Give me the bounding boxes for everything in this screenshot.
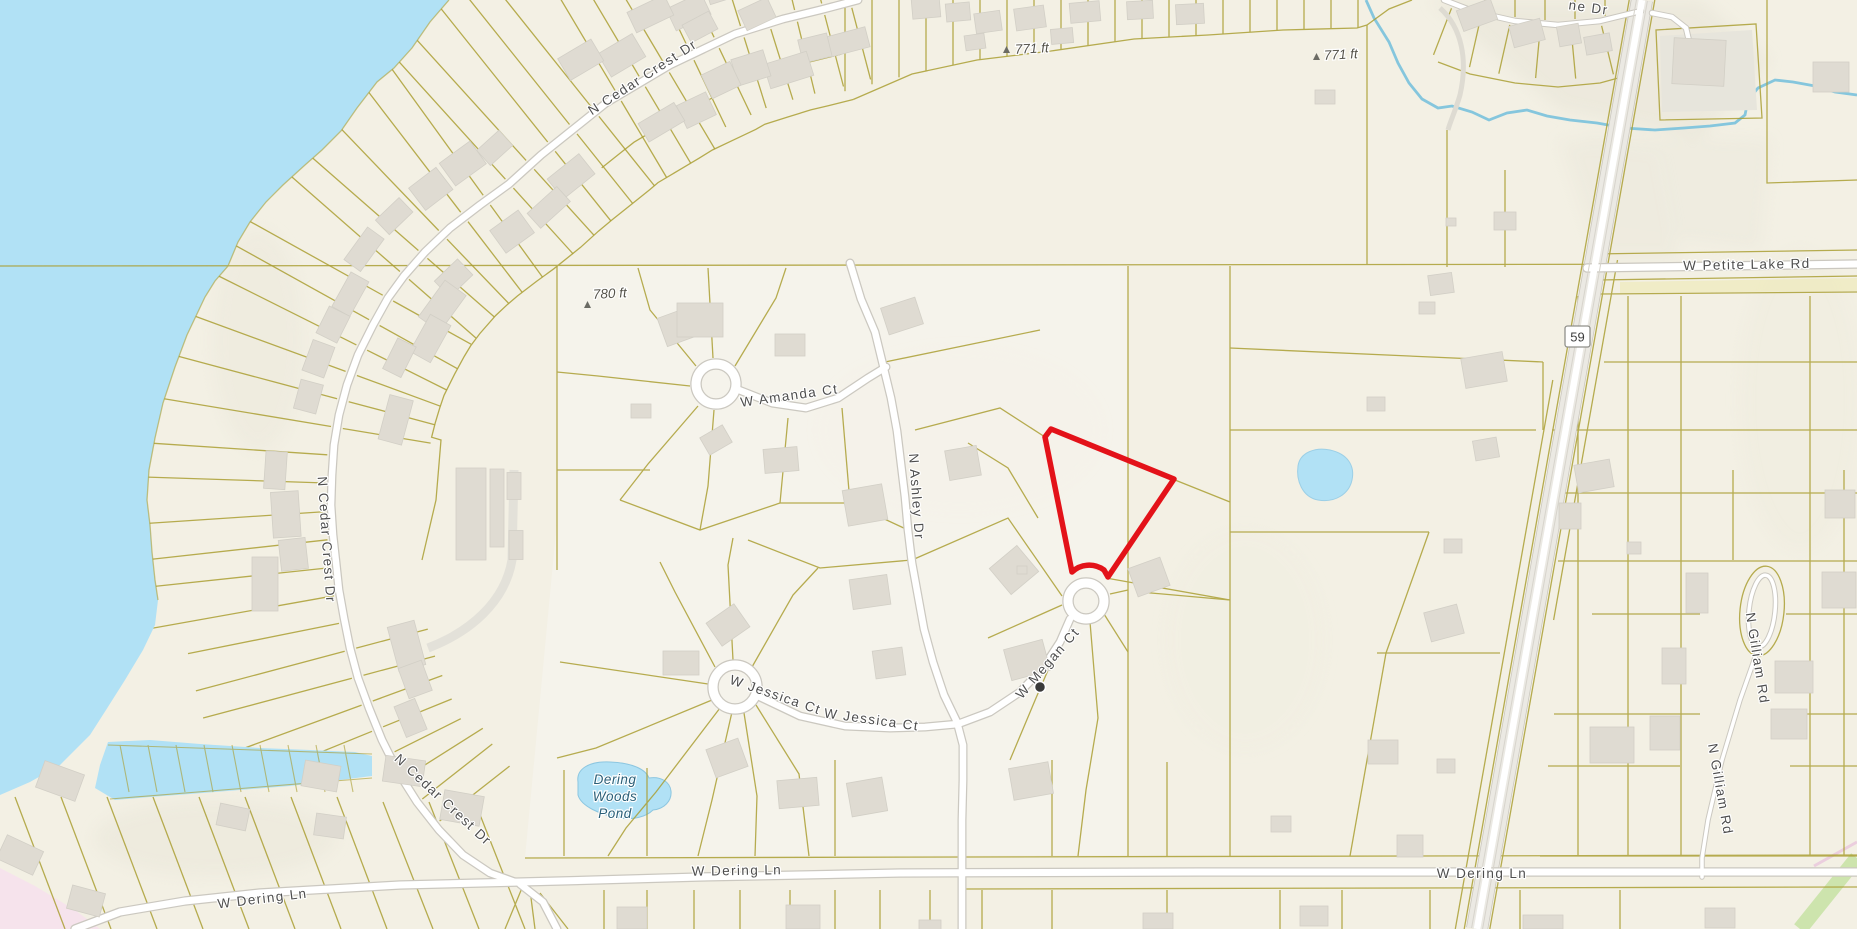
svg-text:W Petite Lake Rd: W Petite Lake Rd [1683,256,1811,273]
svg-text:Pond: Pond [598,806,632,821]
svg-text:771 ft: 771 ft [1324,46,1360,63]
svg-text:W Dering Ln: W Dering Ln [1437,866,1527,881]
svg-text:780 ft: 780 ft [593,285,629,302]
svg-text:Dering: Dering [594,772,637,787]
svg-text:W Dering Ln: W Dering Ln [692,862,783,879]
svg-text:771 ft: 771 ft [1015,40,1051,57]
svg-text:59: 59 [1570,330,1584,345]
svg-text:Woods: Woods [593,789,638,804]
